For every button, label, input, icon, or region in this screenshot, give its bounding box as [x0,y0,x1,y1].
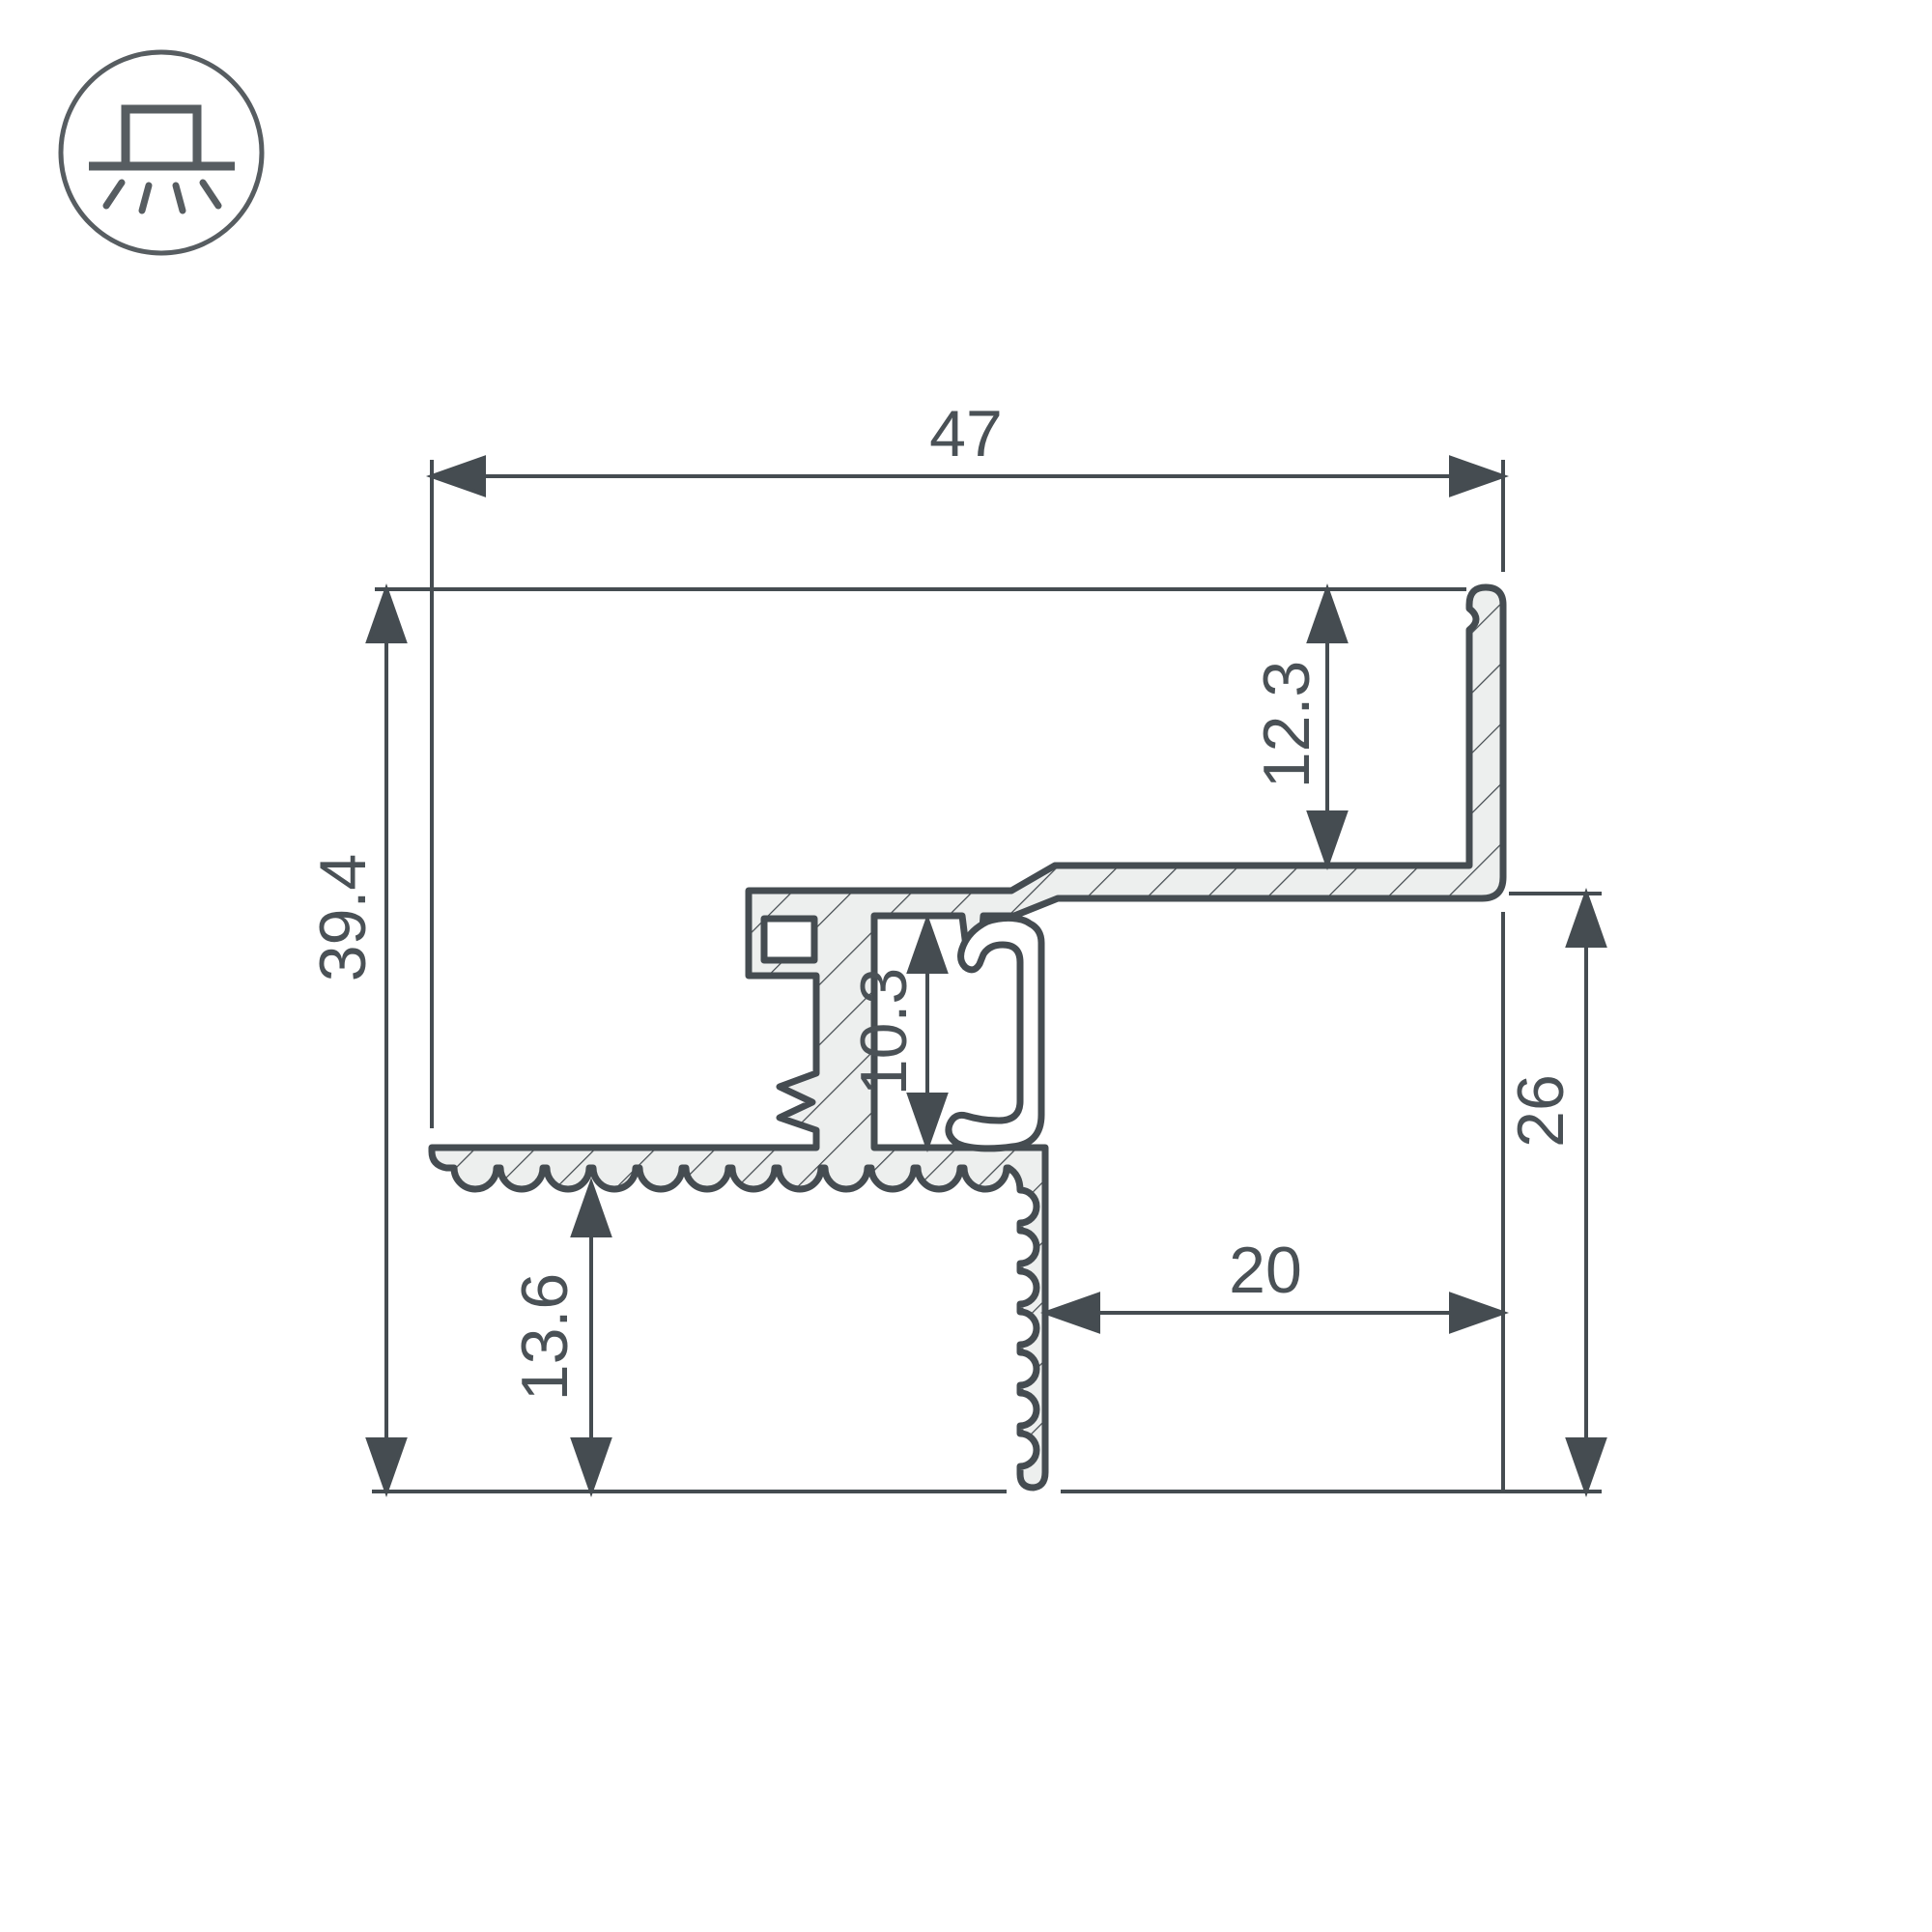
technical-drawing: 47 39.4 12.3 10.3 26 13.6 20 [0,0,1932,1932]
label-total-height: 39.4 [306,854,380,981]
label-bottom-offset: 13.6 [508,1273,582,1401]
label-total-width: 47 [929,397,1003,470]
label-channel-height: 10.3 [847,968,921,1095]
label-horizontal-offset: 20 [1229,1234,1302,1307]
label-flange-height: 12.3 [1250,661,1323,788]
label-right-drop: 26 [1504,1074,1577,1148]
drawing-page: 47 39.4 12.3 10.3 26 13.6 20 [0,0,1932,1932]
